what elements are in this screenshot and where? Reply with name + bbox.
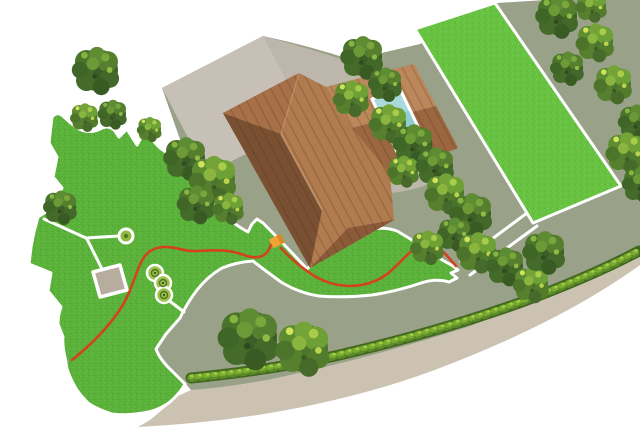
paved-pad bbox=[93, 265, 127, 297]
garden-plan bbox=[0, 0, 640, 427]
path-node bbox=[119, 229, 133, 243]
garden-plan-illustration bbox=[0, 0, 640, 427]
